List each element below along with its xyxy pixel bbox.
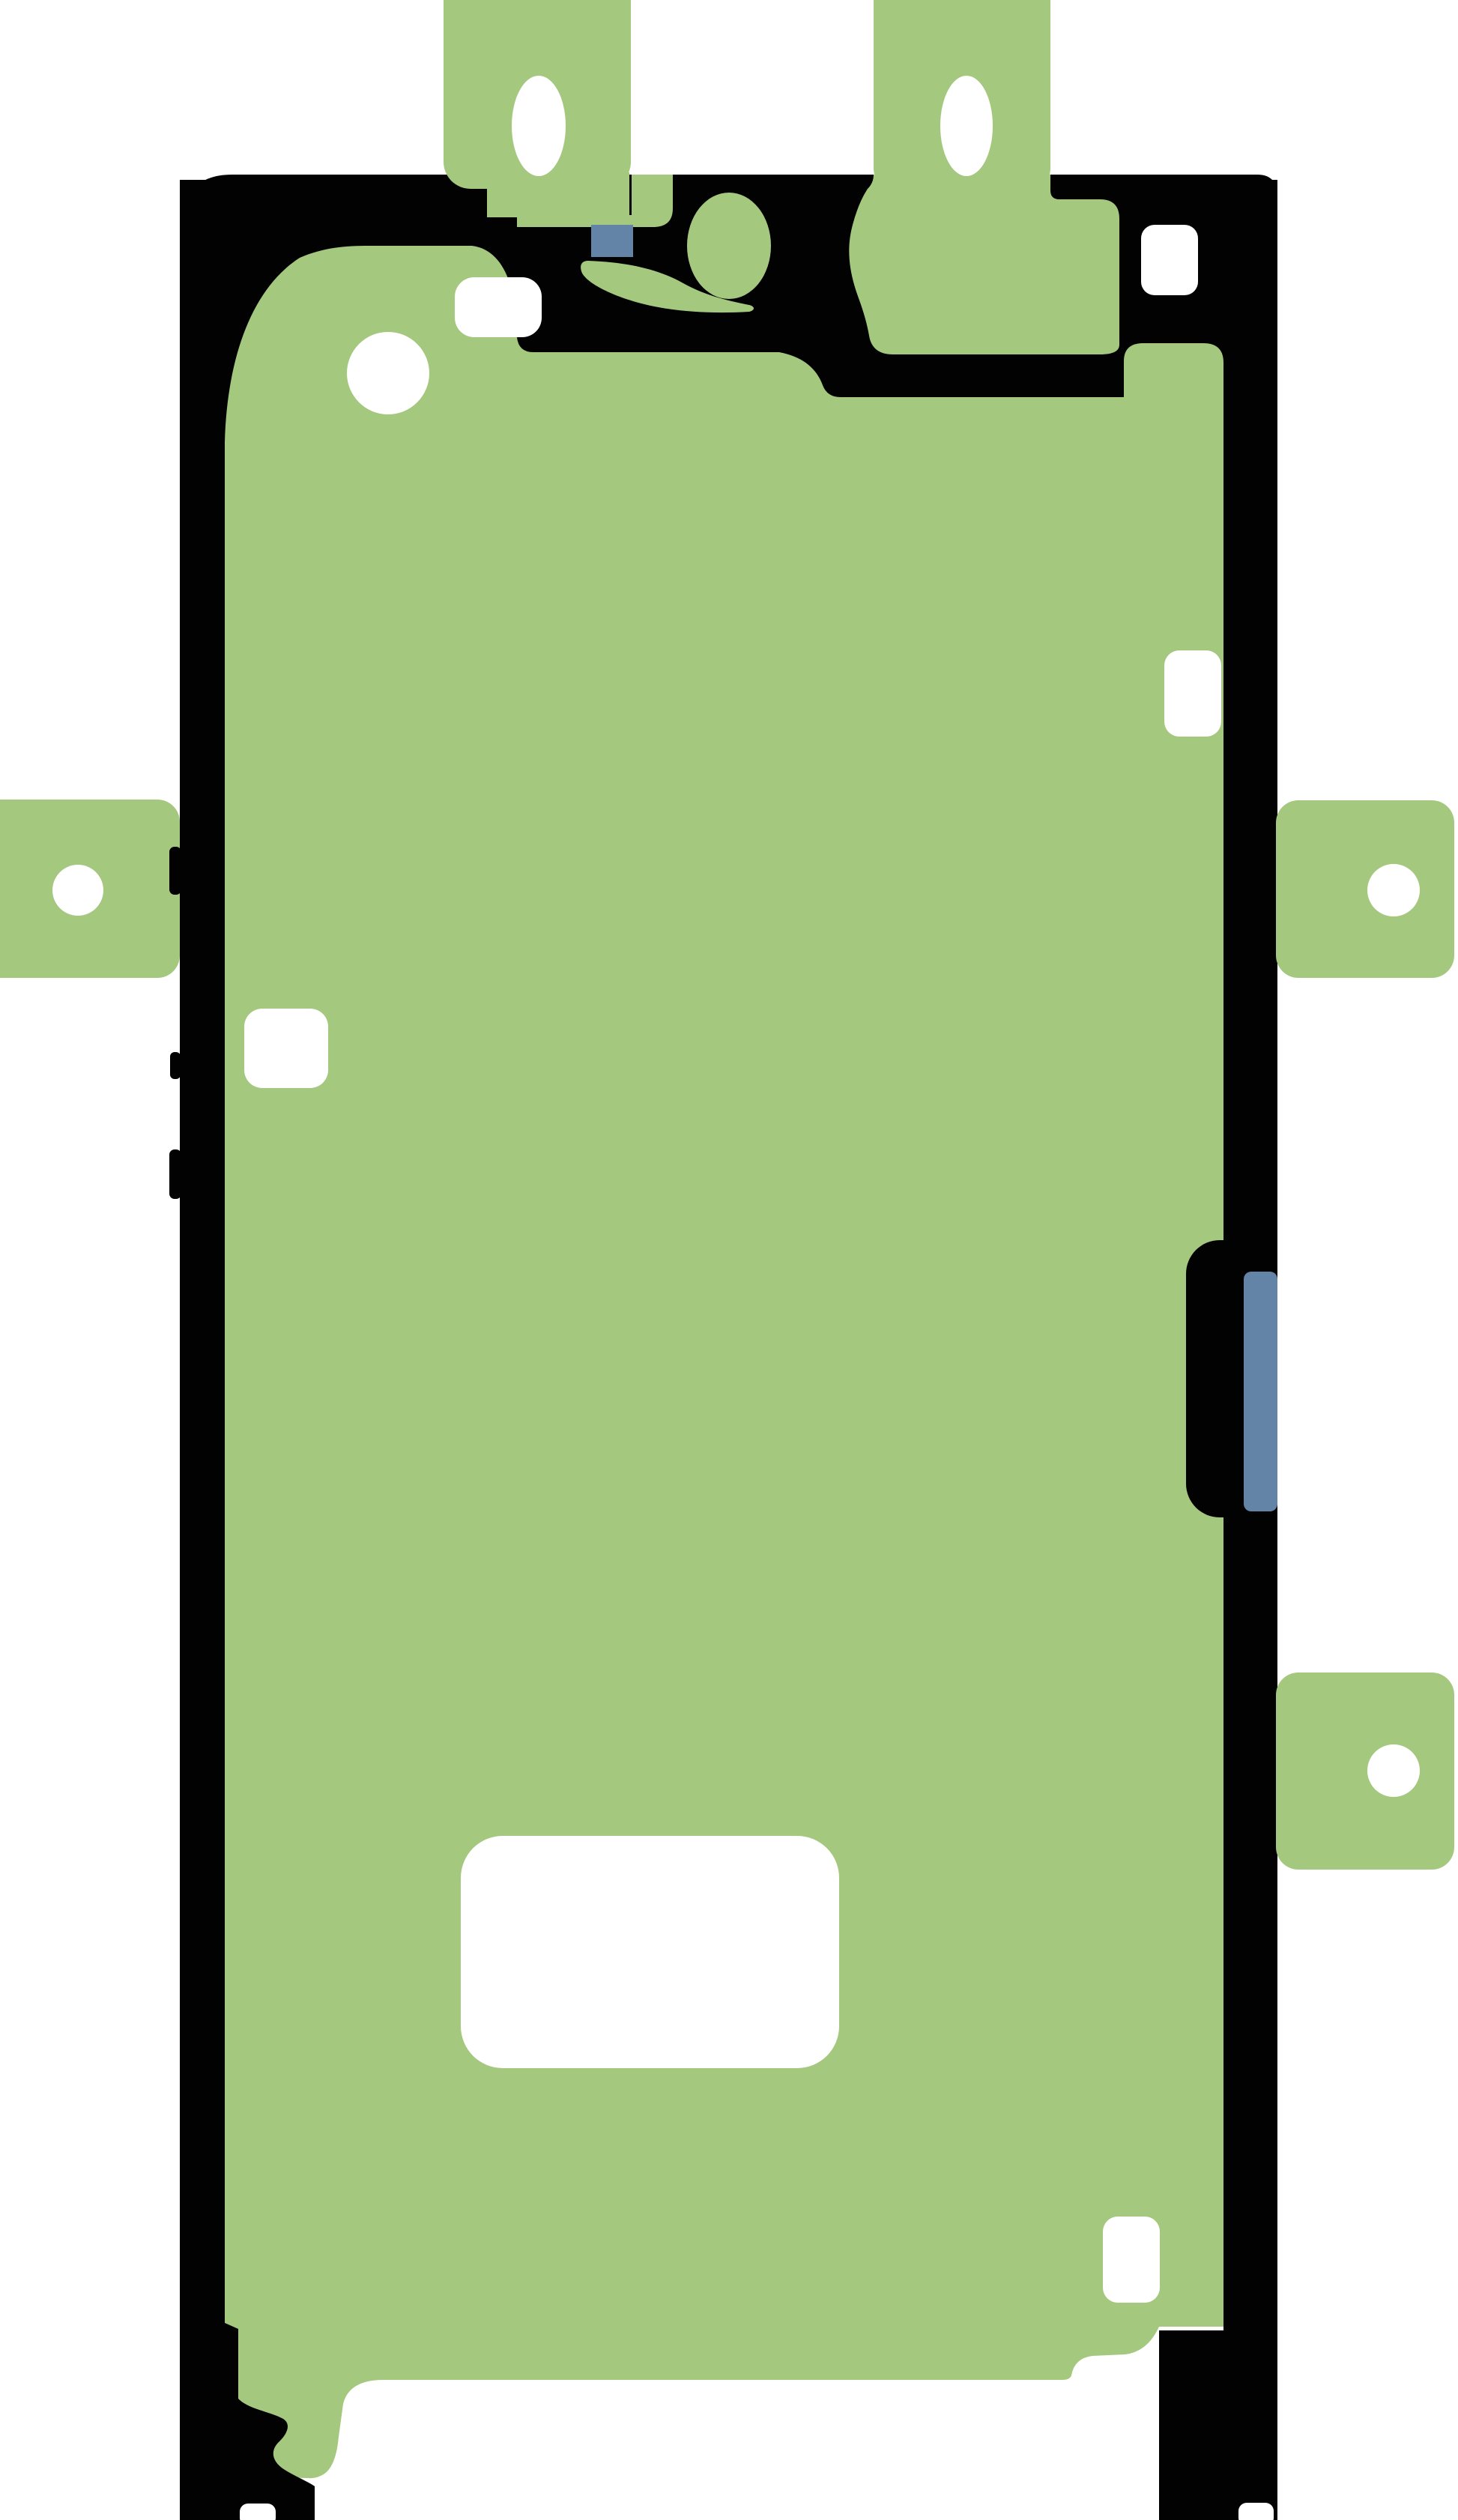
- cutout-badge-top-right: [1141, 225, 1198, 295]
- side-tab-right-upper: [1276, 800, 1454, 978]
- bottom-right-foot: [1159, 2330, 1277, 2520]
- product-image-stage: [0, 0, 1458, 2520]
- adhesive-sticker-illustration: [0, 0, 1458, 2520]
- side-tab-right-lower: [1276, 1673, 1454, 1870]
- camera-opening: [687, 193, 771, 299]
- side-tab-right-upper-hole: [1367, 864, 1420, 916]
- connector-marker-blue-bar: [1244, 1272, 1277, 1511]
- cutout-circle-top-left: [347, 332, 429, 414]
- left-edge-bump-3: [169, 1149, 181, 1199]
- cutout-badge-mid-right: [1164, 650, 1221, 737]
- sensor-marker-blue-square: [591, 225, 633, 257]
- side-tab-right-lower-hole: [1367, 1744, 1420, 1797]
- side-tab-left-hole: [52, 865, 103, 916]
- cutout-window-bottom-center: [461, 1836, 839, 2068]
- left-edge-bump-1: [169, 847, 181, 895]
- top-tab-right-hole: [940, 76, 993, 176]
- adhesive-sheet-interior: [225, 246, 1223, 2478]
- right-upper-green-column: [849, 175, 1119, 354]
- top-tab-left-neck: [487, 172, 629, 217]
- top-tab-left-neck-patch: [632, 175, 673, 227]
- cutout-badge-top-left: [455, 277, 542, 337]
- cutout-badge-bottom-right: [1103, 2217, 1160, 2303]
- right-upper-green-hump: [1124, 343, 1223, 405]
- cutout-badge-mid-left: [244, 1009, 328, 1088]
- bottom-left-foot-notch: [240, 2504, 276, 2520]
- top-tab-left-hole: [512, 76, 566, 176]
- bottom-right-foot-notch: [1238, 2503, 1274, 2520]
- left-edge-bump-2: [170, 1052, 181, 1079]
